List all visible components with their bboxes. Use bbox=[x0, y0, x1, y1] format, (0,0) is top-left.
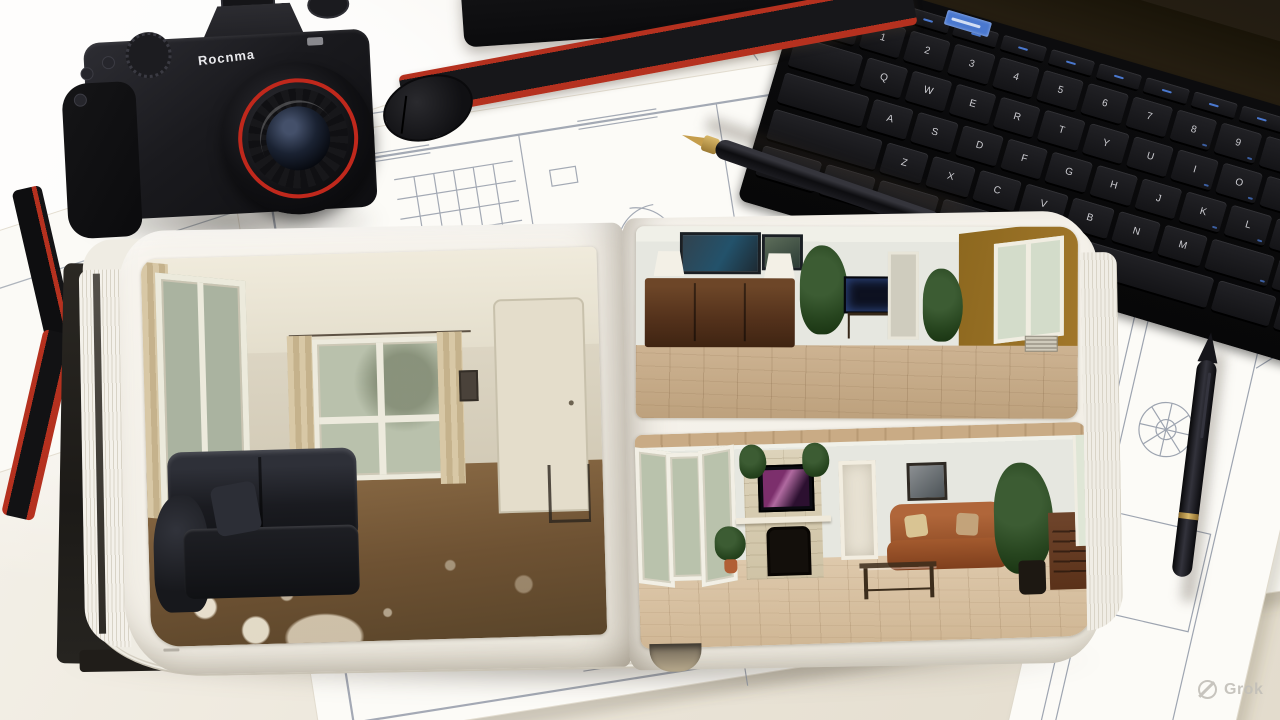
plant-leaves bbox=[714, 526, 747, 561]
watermark-label: Grok bbox=[1224, 681, 1263, 699]
grok-logo-icon bbox=[1198, 680, 1217, 699]
potted-plant bbox=[799, 246, 848, 334]
keyboard-key: U bbox=[1126, 136, 1175, 179]
keyboard-key: E bbox=[948, 83, 997, 126]
wall-vent bbox=[1025, 336, 1058, 351]
hallway-door bbox=[839, 460, 878, 559]
keyboard-key: D bbox=[954, 125, 1003, 168]
keyboard-key: 8 bbox=[1169, 109, 1218, 152]
firebox bbox=[766, 526, 812, 576]
photo-after-renovation-top bbox=[636, 226, 1078, 419]
table-top bbox=[860, 561, 937, 568]
keyboard-key: I bbox=[1170, 149, 1219, 192]
photo-before-renovation bbox=[141, 247, 608, 648]
keyboard-key: G bbox=[1044, 151, 1093, 194]
keyboard-key: A bbox=[865, 98, 914, 141]
pen-cap-tip bbox=[1198, 331, 1222, 363]
desk-scene: 1234567890QWERTYUIOPASDFGHJKLZXCVBNM Roc… bbox=[0, 0, 1280, 720]
table-leg bbox=[929, 566, 935, 597]
keyboard-key: Q bbox=[859, 57, 908, 100]
wall-art bbox=[907, 462, 948, 501]
potted-plant bbox=[923, 269, 963, 342]
keyboard-key: H bbox=[1089, 165, 1138, 208]
coffee-table bbox=[860, 561, 938, 600]
keyboard-key: M bbox=[1157, 225, 1208, 269]
table-lamp bbox=[654, 251, 685, 276]
table-lamp bbox=[764, 253, 795, 278]
keyboard-key: 6 bbox=[1080, 83, 1129, 126]
after1-wood-floor bbox=[636, 345, 1078, 419]
camera-model-badge bbox=[307, 37, 323, 46]
wall-art bbox=[680, 232, 761, 275]
keyboard-key: W bbox=[903, 70, 952, 113]
throw-pillow bbox=[956, 512, 979, 536]
doorway bbox=[888, 251, 919, 339]
keyboard-key: 2 bbox=[902, 30, 951, 73]
keyboard-key: 5 bbox=[1036, 70, 1085, 113]
photo-after-renovation-bottom bbox=[634, 422, 1092, 649]
wood-sideboard bbox=[645, 278, 795, 347]
keyboard-key: 9 bbox=[1213, 122, 1262, 165]
camera: Rocnma bbox=[49, 0, 407, 254]
terracotta-pot bbox=[724, 559, 737, 573]
keyboard-key: Y bbox=[1081, 123, 1130, 166]
book-fore-edge bbox=[1081, 252, 1124, 631]
black-leather-sofa bbox=[151, 447, 361, 619]
watermark: Grok bbox=[1198, 680, 1263, 699]
keyboard-key: S bbox=[910, 112, 959, 155]
plant-pot bbox=[1018, 560, 1046, 595]
keyboard-key: F bbox=[999, 138, 1048, 181]
keyboard-key: 4 bbox=[991, 57, 1040, 100]
photo-book bbox=[56, 204, 1139, 698]
small-wall-frame bbox=[458, 370, 478, 402]
camera-grip bbox=[61, 81, 143, 240]
page-caption-mark bbox=[163, 648, 179, 651]
keyboard-key: 3 bbox=[947, 43, 996, 86]
keyboard-key: L bbox=[1223, 204, 1272, 247]
throw-pillow bbox=[904, 513, 929, 538]
keyboard-key: K bbox=[1178, 191, 1227, 234]
after1-window bbox=[994, 236, 1064, 345]
keyboard-key: J bbox=[1134, 178, 1183, 221]
keyboard-key: 7 bbox=[1124, 96, 1173, 139]
keyboard-key: R bbox=[992, 97, 1041, 140]
keyboard-key: O bbox=[1214, 162, 1263, 205]
table-leg bbox=[863, 568, 869, 599]
curtain bbox=[437, 332, 466, 484]
old-chair bbox=[548, 464, 591, 522]
keyboard-key: T bbox=[1037, 110, 1086, 153]
potted-plant bbox=[714, 526, 747, 574]
camera-top-dial bbox=[307, 0, 350, 20]
sofa-seat bbox=[183, 524, 359, 599]
table-shelf bbox=[864, 587, 935, 591]
sofa-pillow bbox=[209, 480, 263, 537]
